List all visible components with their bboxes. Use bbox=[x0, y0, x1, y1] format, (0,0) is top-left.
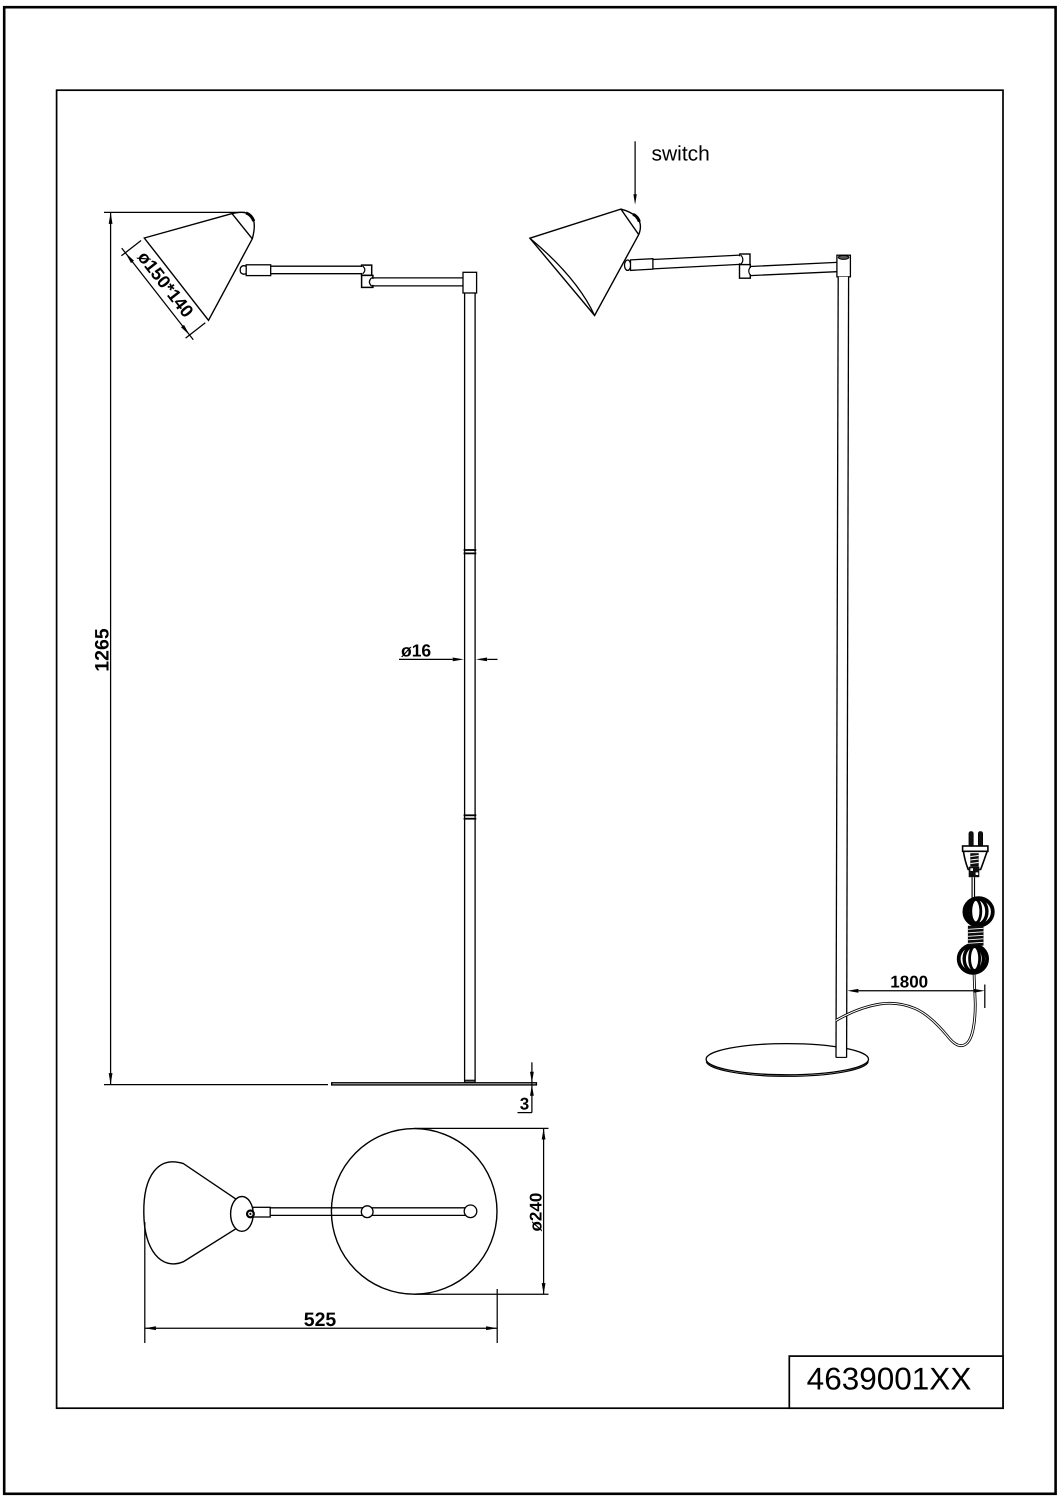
svg-text:ø240: ø240 bbox=[526, 1193, 545, 1232]
svg-text:4639001XX: 4639001XX bbox=[807, 1361, 972, 1397]
svg-text:ø16: ø16 bbox=[401, 641, 431, 661]
svg-text:switch: switch bbox=[652, 143, 710, 166]
svg-text:1800: 1800 bbox=[890, 973, 928, 992]
svg-text:525: 525 bbox=[304, 1309, 337, 1331]
svg-text:3: 3 bbox=[520, 1095, 529, 1114]
svg-text:1265: 1265 bbox=[92, 628, 114, 672]
